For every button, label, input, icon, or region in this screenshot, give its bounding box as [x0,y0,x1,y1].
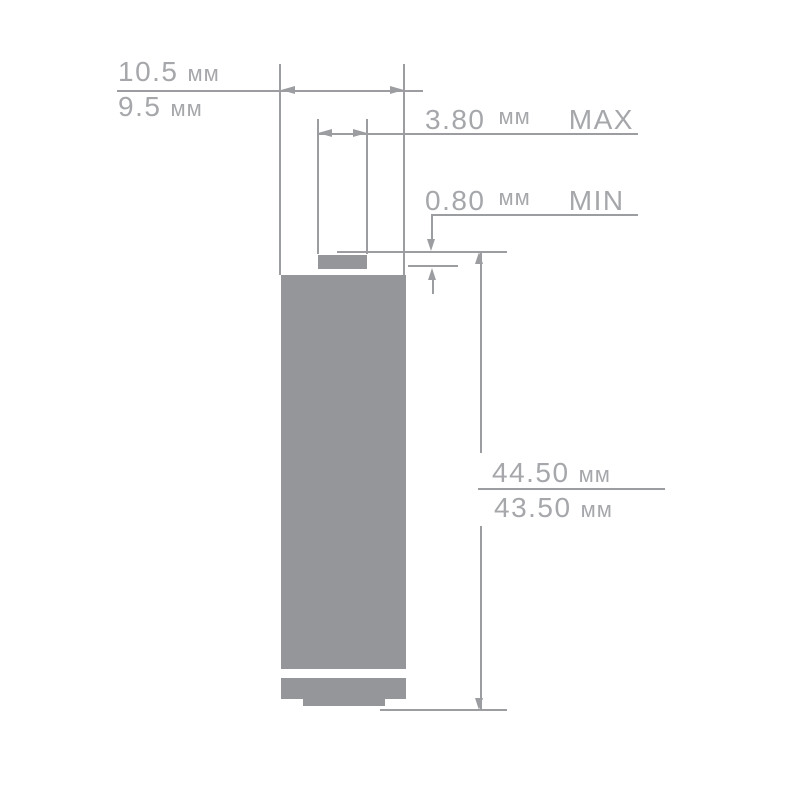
extension-line-body-right [403,64,405,275]
battery-dimension-diagram: 10.5мм 9.5мм 3.80ммMAX 0.80ммMIN 44.50мм… [0,0,800,800]
height-max-value: 44.50 [492,457,570,488]
tip-height-value: 0.80 [425,185,486,216]
extension-line-tip-left [317,119,319,254]
diameter-max-unit: мм [188,61,220,86]
battery-body [281,275,406,669]
tip-height-arrow-down-icon [427,239,435,251]
battery-tip [318,255,367,269]
tip-height-leader-drop [431,214,433,240]
tip-diameter-unit: мм [499,104,531,129]
height-dimension-line-lower [480,526,482,710]
diameter-max-label: 10.5мм [118,57,220,88]
diameter-arrow-left-icon [281,86,295,94]
height-min-label: 43.50мм [494,493,613,524]
battery-base-bottom [303,699,385,706]
extension-line-tip-right [366,119,368,254]
extension-line-body-left [279,64,281,275]
height-max-label: 44.50мм [492,458,611,489]
diameter-max-value: 10.5 [118,56,179,87]
diameter-min-unit: мм [170,96,202,121]
height-min-value: 43.50 [494,492,572,523]
tip-diameter-qualifier: MAX [569,104,634,135]
tip-height-qualifier: MIN [569,185,625,216]
tip-diameter-arrow-left-icon [318,129,332,137]
battery-base [281,678,406,699]
tip-diameter-value: 3.80 [425,104,486,135]
tip-height-label: 0.80ммMIN [425,186,625,217]
diameter-min-value: 9.5 [118,91,161,122]
tip-diameter-label: 3.80ммMAX [425,105,634,136]
height-arrow-up-icon [475,252,483,264]
height-max-unit: мм [579,462,611,487]
diameter-min-label: 9.5мм [118,92,203,123]
shoulder-reference-line [408,265,458,267]
tip-diameter-arrow-right-icon [353,129,367,137]
height-dimension-line-upper [480,252,482,453]
tip-height-unit: мм [499,185,531,210]
tip-height-arrow-stem [432,279,434,294]
height-min-unit: мм [581,497,613,522]
base-reference-line [380,709,507,711]
diameter-arrow-right-icon [390,86,404,94]
